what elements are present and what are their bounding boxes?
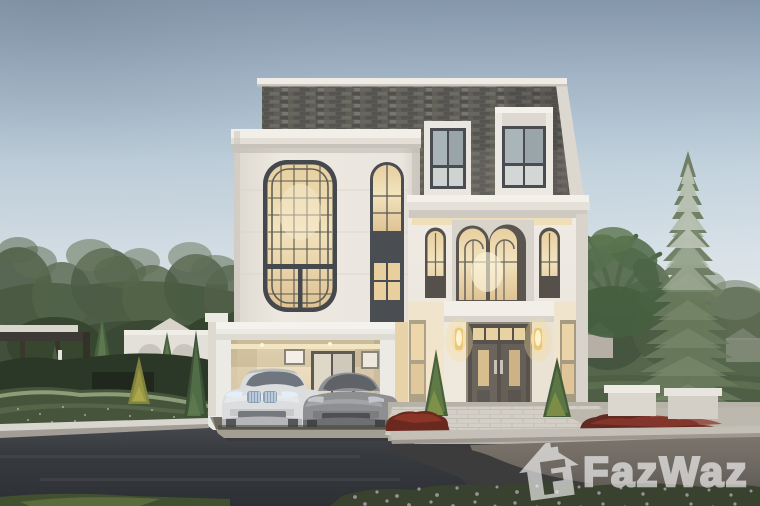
svg-text:FazWaz: FazWaz <box>583 448 749 495</box>
